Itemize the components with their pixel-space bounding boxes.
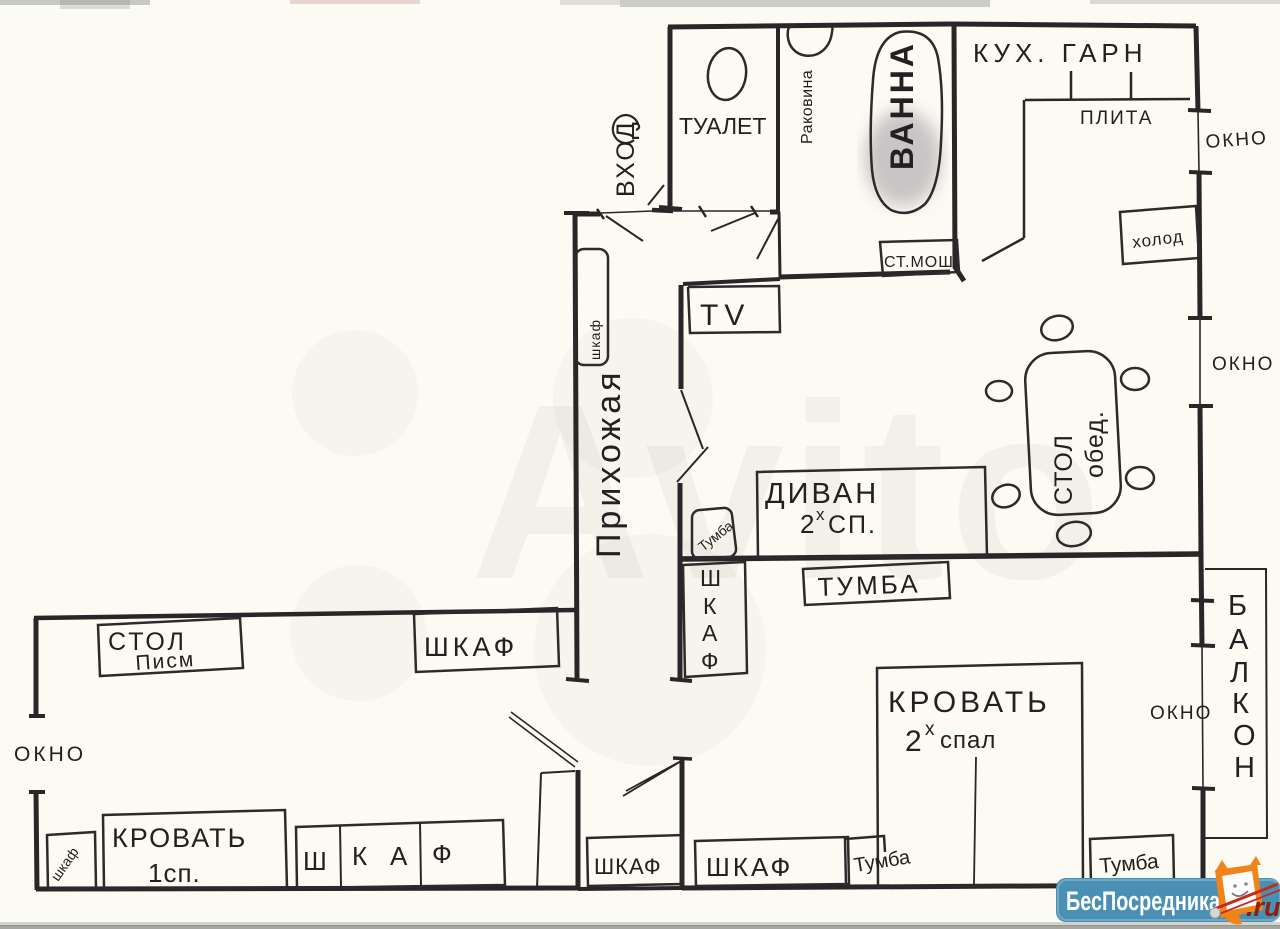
svg-text:ОКНО: ОКНО <box>14 743 86 766</box>
svg-text:ТУМБА: ТУМБА <box>817 568 921 602</box>
svg-text:КРОВАТЬ: КРОВАТЬ <box>112 823 247 853</box>
svg-text:ШКАФ: ШКАФ <box>706 852 793 882</box>
svg-text:спал: спал <box>940 727 996 754</box>
svg-text:шкаф: шкаф <box>587 319 603 360</box>
svg-text:ВХОД: ВХОД <box>612 120 640 197</box>
svg-text:Н: Н <box>1234 752 1255 784</box>
svg-text:К: К <box>1232 688 1249 720</box>
svg-text:Л: Л <box>1230 657 1249 689</box>
svg-text:ВАННА: ВАННА <box>884 41 920 170</box>
svg-text:Раковина: Раковина <box>799 70 816 144</box>
svg-text:КУХ. ГАРН: КУХ. ГАРН <box>973 38 1148 68</box>
svg-text:2: 2 <box>905 725 922 758</box>
svg-text:ОКНО: ОКНО <box>1150 703 1212 724</box>
svg-text:х: х <box>816 505 825 524</box>
svg-text:К: К <box>352 841 367 871</box>
svg-text:Ш: Ш <box>700 565 721 591</box>
svg-text:обед.: обед. <box>1081 410 1109 478</box>
svg-text:ОКНО: ОКНО <box>1205 128 1269 153</box>
svg-text:Прихожая: Прихожая <box>590 368 628 558</box>
svg-text:Б: Б <box>1228 590 1247 622</box>
svg-text:х: х <box>925 719 935 740</box>
svg-text:К: К <box>703 593 717 619</box>
svg-text:Ф: Ф <box>432 839 452 869</box>
svg-text:А: А <box>390 841 408 871</box>
svg-text:ПЛИТА: ПЛИТА <box>1080 108 1153 129</box>
svg-text:А: А <box>702 620 718 646</box>
svg-text:СТ.МОШ: СТ.МОШ <box>884 254 954 271</box>
svg-text:КРОВАТЬ: КРОВАТЬ <box>888 686 1051 719</box>
svg-text:СП.: СП. <box>828 511 877 539</box>
svg-text:ОКНО: ОКНО <box>1212 354 1274 375</box>
svg-text:ШКАФ: ШКАФ <box>594 854 662 879</box>
svg-text:О: О <box>1233 720 1256 752</box>
svg-text:1сп.: 1сп. <box>148 858 201 888</box>
svg-text:БесПосредника: БесПосредника <box>1066 886 1221 916</box>
svg-text:СТОЛ: СТОЛ <box>1050 434 1078 505</box>
svg-text:Ф: Ф <box>701 648 719 674</box>
svg-text:Ш: Ш <box>303 846 327 876</box>
svg-text:2: 2 <box>800 509 816 539</box>
svg-text:А: А <box>1229 624 1249 656</box>
svg-text:TV: TV <box>700 299 750 332</box>
svg-text:ШКАФ: ШКАФ <box>424 632 518 662</box>
svg-text:ТУАЛЕТ: ТУАЛЕТ <box>679 113 766 139</box>
svg-text:Писм: Писм <box>135 648 196 675</box>
svg-text:.ru: .ru <box>1246 892 1280 922</box>
